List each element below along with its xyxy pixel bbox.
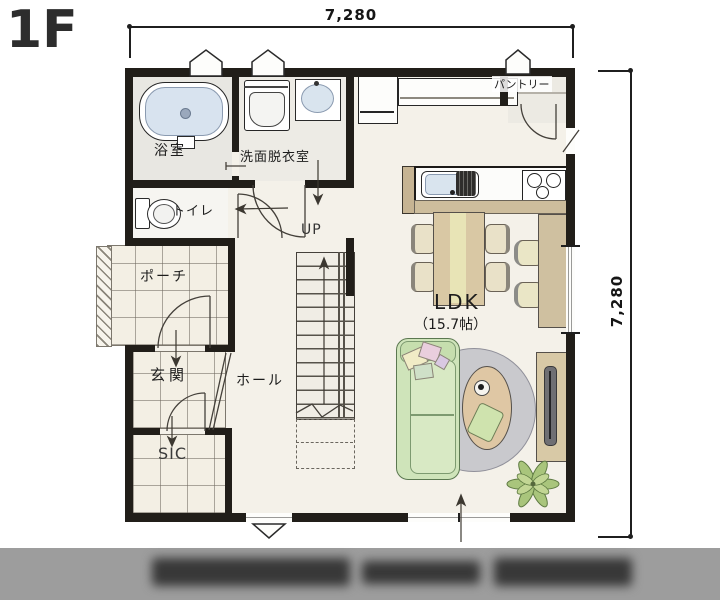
dining-chair bbox=[485, 262, 510, 292]
wall-bottom bbox=[510, 513, 575, 522]
coffee-table-dot bbox=[478, 384, 484, 390]
wall-right bbox=[566, 334, 575, 513]
dimension-extension bbox=[572, 26, 574, 58]
wall-bathrow-bottom bbox=[125, 180, 255, 188]
stove-burner bbox=[536, 186, 549, 199]
porch-label: ポーチ bbox=[140, 266, 188, 286]
window-right-vent bbox=[566, 128, 575, 154]
wall-right bbox=[566, 154, 575, 246]
sofa-seat-divider bbox=[410, 414, 454, 416]
wall-toilet-bottom bbox=[125, 238, 235, 246]
sic-label: SIC bbox=[158, 444, 187, 463]
window-glass-line bbox=[568, 246, 569, 334]
tv bbox=[544, 366, 557, 446]
porch-tiles bbox=[108, 246, 228, 345]
wall-stair-stub bbox=[346, 238, 354, 296]
pantry-label: パントリー bbox=[492, 76, 552, 92]
ldk-size-label: （15.7帖） bbox=[414, 314, 487, 334]
kitchen-back-counter-edge bbox=[400, 97, 514, 99]
ldk-label: LDK bbox=[434, 290, 480, 314]
wall-entry-door-jamb bbox=[125, 345, 155, 352]
kitchen-faucet bbox=[450, 190, 455, 195]
washing-machine-panel-line bbox=[244, 86, 288, 88]
window-end-tick bbox=[561, 332, 580, 334]
stove-burner bbox=[546, 173, 561, 188]
sofa-pillow bbox=[413, 363, 434, 380]
window-center-tick bbox=[458, 513, 460, 522]
dimension-end-dot bbox=[570, 24, 575, 29]
kitchen-sink-drainer bbox=[456, 171, 476, 196]
vanity-faucet bbox=[314, 81, 319, 86]
dimension-top-value: 7,280 bbox=[311, 6, 391, 24]
blurred-caption-segment bbox=[362, 561, 480, 584]
window-glass-line bbox=[571, 246, 572, 334]
stair-dashed-extension bbox=[296, 419, 355, 469]
wall-porch-right bbox=[228, 238, 235, 352]
stairs-up-label: UP bbox=[301, 222, 322, 238]
bar-counter bbox=[538, 214, 568, 328]
entrance-label: 玄関 bbox=[150, 364, 188, 385]
wall-left bbox=[125, 68, 133, 246]
stair-handrail-line bbox=[343, 252, 345, 418]
refrigerator bbox=[358, 76, 398, 124]
blurred-caption-segment bbox=[152, 558, 350, 586]
washing-machine-drum bbox=[249, 92, 285, 127]
dimension-line-right bbox=[630, 70, 632, 538]
stair-handrail-line bbox=[338, 252, 340, 418]
dimension-end-dot bbox=[628, 534, 633, 539]
bath-label: 浴室 bbox=[154, 140, 186, 160]
wall-bath-divider bbox=[232, 72, 239, 152]
blurred-caption-segment bbox=[494, 558, 632, 586]
floor-title: 1F bbox=[6, 0, 78, 60]
wall-washroom-kitchen bbox=[346, 68, 354, 188]
dimension-right-value: 7,280 bbox=[608, 271, 626, 331]
refrigerator-door-line bbox=[360, 111, 394, 113]
washroom-label: 洗面脱衣室 bbox=[240, 146, 310, 165]
wall-sic-right bbox=[225, 428, 232, 522]
window-end-tick bbox=[561, 245, 580, 247]
porch-steps-hatch bbox=[96, 246, 112, 347]
dimension-extension bbox=[598, 70, 632, 72]
wall-right bbox=[566, 77, 575, 128]
wall-entry-door-jamb bbox=[205, 345, 235, 352]
window-triangle-mark bbox=[253, 524, 285, 538]
dining-chair bbox=[485, 224, 510, 254]
hall-label: ホール bbox=[236, 370, 284, 390]
dimension-end-dot bbox=[127, 24, 132, 29]
floor-plan: 1F bbox=[0, 0, 720, 600]
dimension-line-top bbox=[129, 26, 574, 28]
stair-dashed-line bbox=[296, 442, 353, 443]
window-glass-line bbox=[246, 517, 292, 518]
wall-bottom bbox=[292, 513, 408, 522]
toilet-label: トイレ bbox=[172, 200, 214, 219]
vanity-basin bbox=[301, 84, 334, 113]
dimension-end-dot bbox=[628, 68, 633, 73]
bathtub-drain bbox=[180, 108, 191, 119]
dimension-extension bbox=[598, 536, 632, 538]
wall-entrance-sic bbox=[125, 428, 160, 435]
tv-screen-line bbox=[549, 371, 551, 439]
dimension-extension bbox=[129, 26, 131, 58]
caption-bar bbox=[0, 548, 720, 600]
